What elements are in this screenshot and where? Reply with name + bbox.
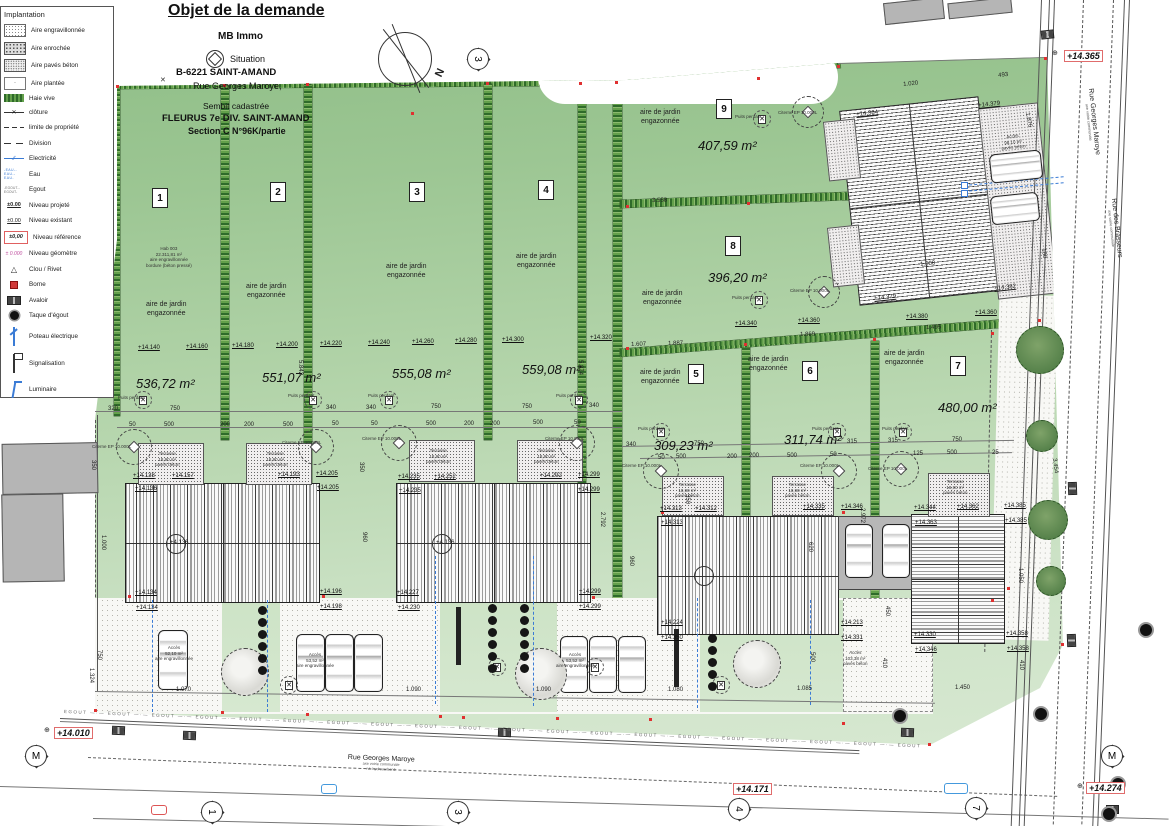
annotation: 200 xyxy=(464,421,474,427)
avaloir-icon xyxy=(1041,29,1055,39)
annotation: 500 xyxy=(787,453,797,459)
borne-point xyxy=(579,82,582,85)
signal-mark xyxy=(321,784,337,794)
annotation: 5.842 xyxy=(297,360,303,375)
annotation: +14.235 xyxy=(398,474,420,480)
annotation: +14.335 xyxy=(803,504,825,510)
borne-point xyxy=(1007,587,1010,590)
annotation: 559,08 m² xyxy=(522,362,581,377)
annotation: +14.380 xyxy=(906,314,928,320)
annotation: +14.213 xyxy=(841,620,863,626)
lot-number-5: 5 xyxy=(688,364,704,384)
legend-item: ∕∕Electricité xyxy=(4,153,110,164)
water-line xyxy=(152,600,153,712)
car xyxy=(618,636,646,693)
taque-egout-icon xyxy=(1035,708,1047,720)
annotation: +14.280 xyxy=(455,338,477,344)
legend-item-label: Niveau existant xyxy=(29,217,72,224)
borne-point xyxy=(928,743,931,746)
annotation: +14.299 xyxy=(579,604,601,610)
borne-point xyxy=(592,596,595,599)
borne-point xyxy=(747,202,750,205)
annotation: 50 xyxy=(574,420,581,426)
annotation: 480,00 m² xyxy=(938,400,997,415)
annotation: +14.313 xyxy=(661,520,683,526)
annotation: 200 xyxy=(490,421,500,427)
legend-item-label: Aire plantée xyxy=(31,80,65,87)
annotation: 200 xyxy=(244,422,254,428)
annotation: +14.235 xyxy=(399,488,421,494)
annotation: +14.134 xyxy=(135,590,157,596)
annotation: 410 xyxy=(881,658,887,668)
water-line xyxy=(533,556,534,706)
benchmark-level: +14.010 xyxy=(54,727,93,739)
annotation: +14.382 xyxy=(994,284,1016,292)
annotation: +4.136 xyxy=(436,540,455,546)
annotation: aire de jardin engazonnée xyxy=(884,349,924,367)
taque-egout-icon xyxy=(1103,808,1115,820)
legend-item: △Clou / Rivet xyxy=(4,264,110,275)
annotation: ✕ xyxy=(160,76,166,84)
annotation: Puits perdant xyxy=(288,393,315,399)
niveau-geometre-icon: ± 0.000 xyxy=(4,248,24,259)
borne-point xyxy=(991,599,994,602)
bush-tree xyxy=(1036,566,1066,596)
annotation: ⊕ xyxy=(44,726,50,734)
annotation: +14.138 xyxy=(133,473,155,479)
borne-point xyxy=(626,347,629,350)
annotation: +14.292 xyxy=(540,473,562,479)
niveau-projete-icon: ±0.00 xyxy=(4,200,24,211)
borne-point xyxy=(486,82,489,85)
annotation: aire de jardin engazonnée xyxy=(146,300,186,318)
annotation: Accès 53,52 m² aire engravillonnée xyxy=(296,652,334,669)
citerne-circle xyxy=(381,425,417,461)
borne-point xyxy=(221,711,224,714)
legend-item: ±0,00Niveau référence xyxy=(4,231,110,244)
annotation: aire de jardin engazonnée xyxy=(516,252,556,270)
borne-point xyxy=(306,83,309,86)
electricite-icon: ∕∕ xyxy=(4,153,24,164)
annotation: +14.240 xyxy=(368,340,390,346)
annotation: +14.379 xyxy=(874,294,896,302)
annotation: Citerne EP 10.000L xyxy=(790,288,829,294)
legend-item-label: Niveau géomètre xyxy=(29,250,77,257)
annotation: 125 xyxy=(913,451,923,457)
legend-items: Aire engravillonnéeAire enrochéeAire pav… xyxy=(4,24,110,401)
annotation: 200 xyxy=(727,454,737,460)
annotation: +14.331 xyxy=(841,635,863,641)
annotation: +4.136 xyxy=(170,540,189,546)
annotation: 1.050 xyxy=(1017,568,1023,583)
citerne-circle xyxy=(298,429,334,465)
annotation: Citerne EP 10.000L xyxy=(362,436,401,442)
bush-tree xyxy=(1028,500,1068,540)
annotation: Accès 98,10 m² pavés béton xyxy=(1000,132,1026,151)
borne-point xyxy=(842,722,845,725)
legend-item: Luminaire xyxy=(4,379,110,401)
borne-point xyxy=(744,343,747,346)
legend-item: -EAU--EAU--EAU-Eau xyxy=(4,169,110,180)
annotation: Terrasse 18,90 m² pavés béton xyxy=(785,482,810,499)
annotation: 1.090 xyxy=(406,687,421,693)
annotation: N xyxy=(433,67,447,79)
legend-item: ±0.00Niveau existant xyxy=(4,215,110,226)
avaloir-icon xyxy=(4,295,24,306)
legend-item: -EGOUT--EGOUT-Egout xyxy=(4,184,110,195)
car xyxy=(990,192,1041,226)
puits-perdant-marker: ✕ xyxy=(280,676,298,694)
annotation: +14.193 xyxy=(278,472,300,478)
bollard-column xyxy=(488,604,497,676)
legend-item: ·Aire plantée xyxy=(4,77,110,90)
borne-point xyxy=(322,595,325,598)
borne-point xyxy=(411,112,414,115)
annotation: 500 xyxy=(809,652,815,662)
annotation: 350 xyxy=(358,462,364,472)
annotation: 1.000 xyxy=(920,260,936,268)
legend-item: Aire engravillonnée xyxy=(4,24,110,37)
benchmark-level: +14.365 xyxy=(1064,50,1103,62)
annotations-layer: 12345678931347MM+14.365+14.010+14.171+14… xyxy=(0,0,1169,826)
annotation: 50 xyxy=(658,455,665,461)
annotation: aire de jardin engazonnée xyxy=(642,289,682,307)
section-marker-7: 7 xyxy=(964,796,988,820)
section-marker-M: M xyxy=(24,744,48,768)
annotation: 315 xyxy=(888,438,898,444)
poteau-icon xyxy=(4,326,24,348)
bush-tree xyxy=(1026,420,1058,452)
annotation: 500 xyxy=(164,422,174,428)
borne-point xyxy=(649,718,652,721)
legend-item-label: Aire pavés béton xyxy=(31,62,78,69)
egout-icon: -EGOUT--EGOUT- xyxy=(4,184,24,195)
legend-item: Aire pavés béton xyxy=(4,59,110,72)
lot-number-7: 7 xyxy=(950,356,966,376)
borne-point xyxy=(615,81,618,84)
niveau-reference-icon: ±0,00 xyxy=(4,231,28,244)
engravillonnee-icon xyxy=(4,24,26,37)
section-marker-M: M xyxy=(1100,744,1124,768)
lot-number-4: 4 xyxy=(538,180,554,200)
section-marker-4: 4 xyxy=(727,797,751,821)
annotation: Accès 103,38 m² pavés béton xyxy=(843,650,868,667)
annotation: 407,59 m² xyxy=(698,138,757,153)
annotation: Puits perdant xyxy=(882,426,909,432)
legend-panel: Implantation Aire engravillonnéeAire enr… xyxy=(0,6,114,398)
annotation: 200 xyxy=(749,453,759,459)
annotation: 1.607 xyxy=(631,341,646,348)
annotation: +14.385 xyxy=(1005,518,1027,524)
lot-number-3: 3 xyxy=(409,182,425,202)
annotation: 555,08 m² xyxy=(392,366,451,381)
bollard-column xyxy=(520,604,529,676)
site-plan: 12345678931347MM+14.365+14.010+14.171+14… xyxy=(0,0,1169,826)
water-line xyxy=(697,598,698,708)
annotation: +14.360 xyxy=(798,318,820,324)
annotation: Terrasse 18,90 m² pavés béton xyxy=(263,451,288,468)
annotation: +14.230 xyxy=(398,605,420,611)
annotation: 750 xyxy=(431,404,441,410)
annotation: 493 xyxy=(998,72,1009,79)
car xyxy=(989,149,1044,183)
annotation: 536,72 m² xyxy=(136,376,195,391)
annotation: Terrasse 18,90 m² pavés béton xyxy=(943,479,968,496)
borne-point xyxy=(116,85,119,88)
annotation: +14.300 xyxy=(502,337,524,343)
borne-point xyxy=(306,713,309,716)
legend-title: Implantation xyxy=(4,10,110,19)
annotation: 750 xyxy=(96,650,102,660)
annotation: +14.134 xyxy=(136,605,158,611)
annotation: +14.330 xyxy=(914,632,936,638)
annotation: +14.140 xyxy=(138,345,160,351)
annotation: +14.136 xyxy=(135,486,157,492)
section-marker-1: 1 xyxy=(200,800,224,824)
annotation: 2.792 xyxy=(599,512,605,527)
car xyxy=(354,634,383,692)
annotation: 340 xyxy=(326,405,336,411)
legend-item: Borne xyxy=(4,279,110,290)
clou-icon: △ xyxy=(4,264,24,275)
annotation: +14.224 xyxy=(661,620,683,626)
annotation: 1.495 xyxy=(926,324,941,331)
annotation: +14.358 xyxy=(1006,631,1028,637)
tree xyxy=(733,640,781,688)
citerne-circle xyxy=(821,453,857,489)
annotation: +14.313 xyxy=(660,506,682,512)
section-marker-3: 3 xyxy=(446,800,470,824)
legend-item-label: Avaloir xyxy=(29,297,48,304)
avaloir-icon xyxy=(112,726,125,735)
borne-point xyxy=(1038,319,1041,322)
annotation: 5.874 xyxy=(577,360,583,375)
annotation: ⊕ xyxy=(1052,49,1058,57)
annotation: Puits perdant xyxy=(732,295,759,301)
annotation: 311,74 m² xyxy=(784,432,842,447)
annotation: Citerne EP 10.000L xyxy=(282,440,321,446)
annotation: Terrasse 18,90 m² pavés béton xyxy=(155,451,180,468)
annotation: 180 xyxy=(1040,248,1047,259)
annotation: +14.299 xyxy=(578,487,600,493)
annotation: 1.869 xyxy=(800,331,815,338)
division-icon xyxy=(4,138,24,149)
annotation: 500 xyxy=(426,421,436,427)
annotation: +14.379 xyxy=(978,101,1000,109)
annotation: +14.180 xyxy=(232,343,254,349)
annotation: aire de jardin engazonnée xyxy=(640,108,680,126)
lot-number-1: 1 xyxy=(152,188,168,208)
annotation: +14.346 xyxy=(915,647,937,653)
legend-item-label: clôture xyxy=(29,109,48,116)
legend-item: Signalisation xyxy=(4,352,110,374)
legend-item-label: Taque d'égout xyxy=(29,312,68,319)
legend-item-label: Borne xyxy=(29,281,46,288)
annotation: 50 xyxy=(332,421,339,427)
annotation: +14.350 xyxy=(661,635,683,641)
annotation: 50 xyxy=(129,422,136,428)
annotation: 750 xyxy=(522,404,532,410)
annotation: 410 xyxy=(1018,660,1024,670)
annotation: +14.220 xyxy=(320,341,342,347)
annotation: +14.205 xyxy=(317,485,339,491)
retaining-wall xyxy=(456,607,461,665)
annotation: 350 xyxy=(90,460,96,470)
avaloir-icon xyxy=(901,728,914,737)
taque-egout-icon xyxy=(1140,624,1152,636)
annotation: 960 xyxy=(361,532,367,542)
annotation: Puits perdant xyxy=(368,393,395,399)
signalisation-icon xyxy=(4,352,24,374)
annotation: 960 xyxy=(628,556,634,566)
signal-mark xyxy=(944,783,968,794)
annotation: aire de jardin engazonnée xyxy=(386,262,426,280)
legend-item: Poteau électrique xyxy=(4,326,110,348)
borne-point xyxy=(837,65,840,68)
legend-item: Haie vive xyxy=(4,94,110,102)
annotation: 50 xyxy=(371,421,378,427)
borne-point xyxy=(439,715,442,718)
legend-item-label: Division xyxy=(29,140,51,147)
legend-item: ±0.00Niveau projeté xyxy=(4,200,110,211)
annotation: Hab 003 22.311,81 m² aire engravillonnée… xyxy=(146,246,192,269)
annotation: 2.972 xyxy=(859,508,865,523)
lot-number-8: 8 xyxy=(725,236,741,256)
citerne-circle xyxy=(559,425,595,461)
annotation: 750 xyxy=(694,441,704,447)
paves-icon xyxy=(4,59,26,72)
borne-point xyxy=(991,332,994,335)
annotation: 1.324 xyxy=(88,668,94,683)
annotation: +14.362 xyxy=(957,504,979,510)
lot-number-9: 9 xyxy=(716,99,732,119)
annotation: Puits perdant xyxy=(735,114,762,120)
haie-icon xyxy=(4,94,24,102)
enrochee-icon xyxy=(4,42,26,55)
annotation: +14.260 xyxy=(412,339,434,345)
annotation: 1.876 xyxy=(1024,112,1033,128)
plantee-icon: · xyxy=(4,77,26,90)
annotation: 500 xyxy=(947,450,957,456)
annotation: Citerne EP 10.000L xyxy=(622,463,661,469)
annotation: 50 xyxy=(830,452,837,458)
legend-item-label: Electricité xyxy=(29,155,56,162)
annotation: +14.320 xyxy=(590,335,612,341)
legend-item-label: Clou / Rivet xyxy=(29,266,62,273)
annotation: 396,20 m² xyxy=(708,270,767,285)
legend-item-label: Eau xyxy=(29,171,40,178)
legend-item: ± 0.000Niveau géomètre xyxy=(4,248,110,259)
borne-point xyxy=(842,511,845,514)
annotation: Citerne EP 10.000L xyxy=(545,436,584,442)
annotation: Citerne EP 10.000L xyxy=(778,110,817,116)
annotation: 1.887 xyxy=(668,340,683,347)
legend-item: limite de propriété xyxy=(4,122,110,133)
annotation: 350 xyxy=(684,494,690,504)
annotation: Puits perdant xyxy=(118,395,145,401)
bollard-column xyxy=(258,606,267,678)
legend-item: ✕clôture xyxy=(4,107,110,118)
cloture-icon: ✕ xyxy=(4,107,24,118)
legend-item: Taque d'égout xyxy=(4,310,110,321)
annotation: 500 xyxy=(283,422,293,428)
annotation: 750 xyxy=(952,437,962,443)
annotation: +14.299 xyxy=(579,589,601,595)
annotation: +14.200 xyxy=(276,342,298,348)
taque-egout-icon xyxy=(894,710,906,722)
benchmark-level: +14.274 xyxy=(1086,782,1125,794)
annotation: 500 xyxy=(533,420,543,426)
annotation: 1.070 xyxy=(176,687,191,693)
annotation: 1.450 xyxy=(955,685,970,691)
annotation: +14.196 xyxy=(320,589,342,595)
annotation: 25 xyxy=(992,450,999,456)
annotation: EGOUT —·— EGOUT —·— EGOUT —·— EGOUT —·— … xyxy=(64,709,921,748)
annotation: +14.385 xyxy=(1004,503,1026,509)
annotation: 320 xyxy=(108,406,118,412)
legend-item-label: Haie vive xyxy=(29,95,55,102)
bollard-column xyxy=(708,634,717,694)
annotation: 1.085 xyxy=(797,686,812,692)
legend-item-label: Aire enrochée xyxy=(31,45,70,52)
annotation: ⊕ xyxy=(1077,782,1083,790)
borne-point xyxy=(1061,643,1064,646)
luminaire-icon xyxy=(4,379,24,401)
legend-item-label: Signalisation xyxy=(29,360,65,367)
annotation: Puits perdant xyxy=(638,426,665,432)
annotation: +14.205 xyxy=(316,471,338,477)
limite-icon xyxy=(4,122,24,133)
legend-item-label: Luminaire xyxy=(29,386,57,393)
annotation: aire de jardin engazonnée xyxy=(246,282,286,300)
legend-item: Avaloir xyxy=(4,295,110,306)
annotation: 1.080 xyxy=(668,687,683,693)
annotation: 1.090 xyxy=(536,687,551,693)
water-line xyxy=(435,556,436,704)
annotation: +14.157 xyxy=(172,473,194,479)
borne-point xyxy=(873,338,876,341)
bush-tree xyxy=(1016,326,1064,374)
annotation: +14.358 xyxy=(1007,646,1029,652)
annotation: 620 xyxy=(807,542,813,552)
annotation: +14.360 xyxy=(975,310,997,316)
lot-number-6: 6 xyxy=(802,361,818,381)
section-marker-3: 3 xyxy=(466,47,490,71)
annotation: 450 xyxy=(884,606,890,616)
annotation: +14.160 xyxy=(186,344,208,350)
borne-point xyxy=(556,717,559,720)
annotation: Accès 52,10 m² aire engravillonnée xyxy=(155,645,193,662)
annotation: Accès 53,52 m² aire engravillonnée xyxy=(556,652,594,669)
annotation: +14.344 xyxy=(914,505,936,511)
borne-point xyxy=(462,716,465,719)
legend-item-label: limite de propriété xyxy=(29,124,79,131)
annotation: +14.363 xyxy=(915,520,937,526)
eau-icon: -EAU--EAU--EAU- xyxy=(4,169,24,180)
avaloir-icon xyxy=(183,731,196,740)
car xyxy=(845,524,873,578)
annotation: +14.299 xyxy=(578,472,600,478)
annotation: Citerne EP 10.000L xyxy=(868,466,907,472)
street-label-bottom: Rue Georges Maroye axe voirie communale … xyxy=(347,754,415,773)
annotation: Citerne EP 10.000L xyxy=(800,463,839,469)
borne-point xyxy=(1044,57,1047,60)
car xyxy=(882,524,910,578)
annotation: 3.558 xyxy=(652,197,667,204)
benchmark-level: +14.171 xyxy=(733,783,772,795)
annotation: 200 xyxy=(220,422,230,428)
legend-item-label: Niveau référence xyxy=(33,234,81,241)
